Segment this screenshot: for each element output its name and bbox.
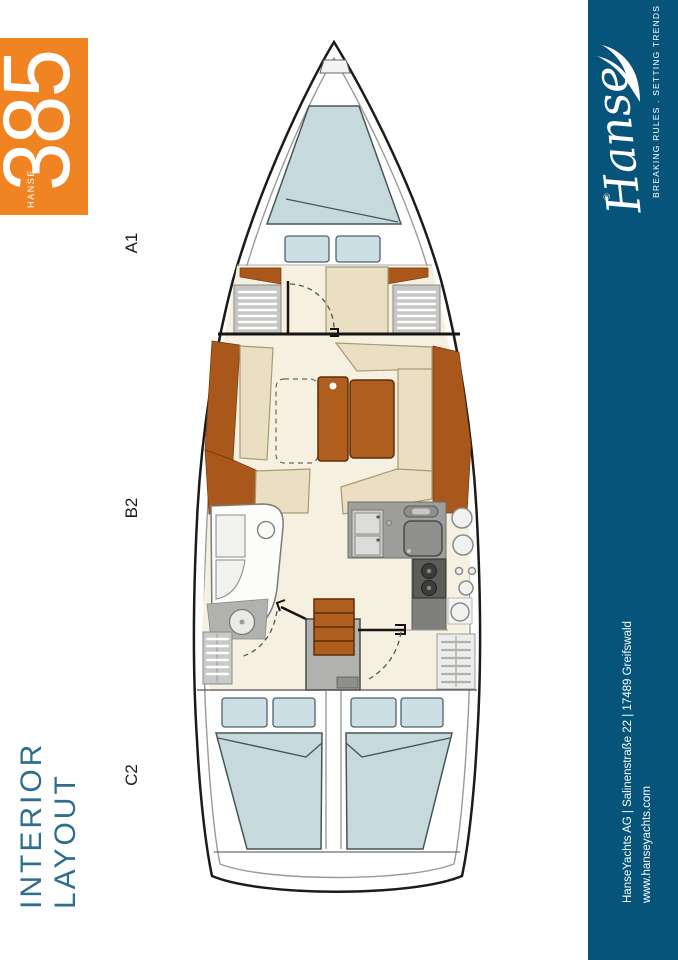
galley-icebox (404, 521, 442, 556)
layout-label-b2: B2 (121, 486, 143, 530)
forward-cabinet (326, 267, 388, 334)
hull-trim-starboard (433, 346, 471, 513)
locker-starboard-aft (437, 634, 475, 689)
companionway-steps (314, 599, 354, 655)
brand-sidebar: ® Hanse BREAKING RULES . SETTING TRENDS … (588, 0, 678, 960)
toilet (230, 610, 255, 635)
page-title: INTERIOR LAYOUT (29, 599, 69, 909)
galley-hatch (404, 506, 438, 517)
model-number: 385 (0, 51, 87, 191)
engine-hatch (337, 677, 358, 688)
bow-anchor-locker (320, 60, 350, 73)
head-sink (258, 522, 275, 539)
layout-label-c2: C2 (121, 753, 143, 797)
wardrobe-port (234, 285, 281, 334)
hanse-swoosh-icon (596, 44, 642, 104)
company-address: HanseYachts AG | Salinenstraße 22 | 1748… (622, 621, 634, 903)
layout-label-a1: A1 (121, 221, 143, 265)
brand-tagline: BREAKING RULES . SETTING TRENDS (651, 38, 661, 198)
wardrobe-starboard (393, 285, 440, 334)
galley-stove (413, 559, 446, 598)
company-website: www.hanseyachts.com (641, 786, 653, 903)
model-badge-inner: HANSE 385 (0, 38, 88, 215)
brand-sidebar-inner: ® Hanse BREAKING RULES . SETTING TRENDS … (588, 0, 678, 960)
boat-floorplan (186, 30, 486, 910)
model-badge: HANSE 385 (0, 38, 88, 215)
salon-table (318, 377, 394, 461)
locker-port-aft (203, 632, 232, 684)
company-address-block: HanseYachts AG | Salinenstraße 22 | 1748… (619, 621, 657, 903)
brochure-page: HANSE 385 A1 B2 C2 INTERIOR LAYOUT (0, 0, 678, 960)
